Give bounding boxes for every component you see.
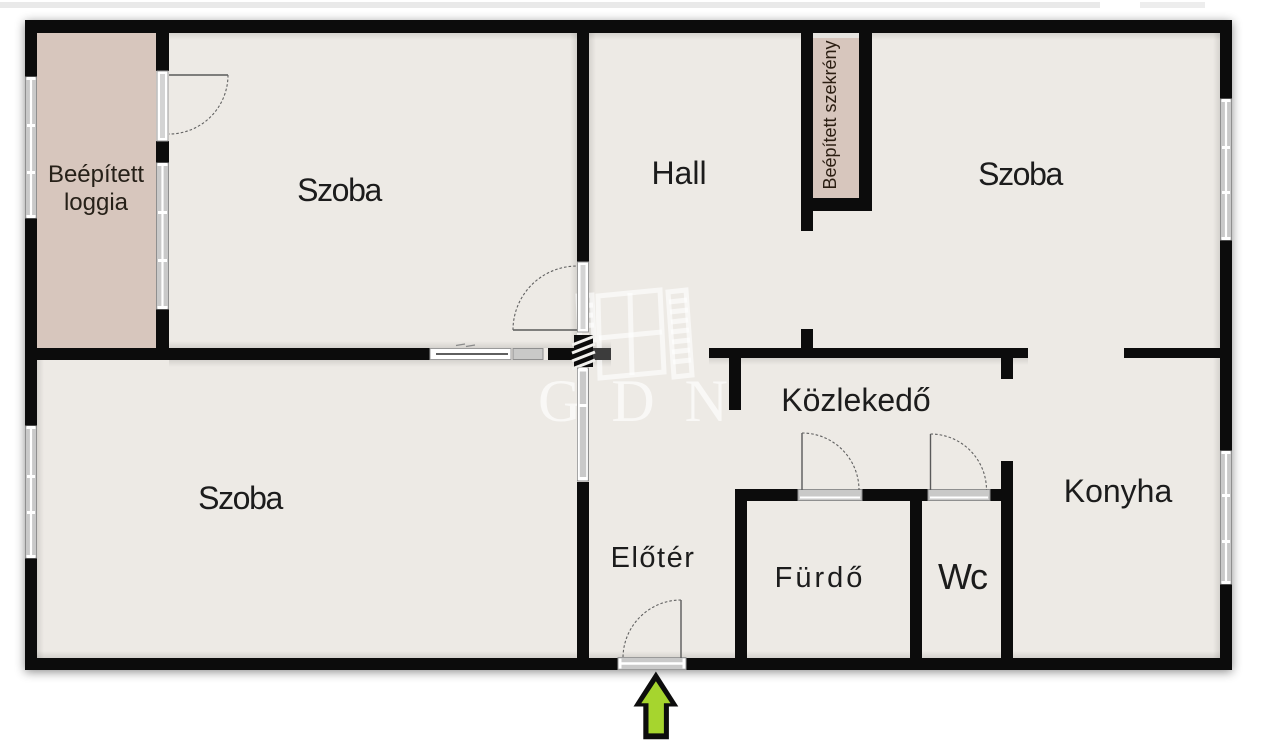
svg-text:Szoba: Szoba — [198, 480, 283, 516]
svg-text:Előtér: Előtér — [611, 542, 696, 574]
svg-text:Szoba: Szoba — [978, 156, 1063, 192]
svg-text:Beépített szekrény: Beépített szekrény — [820, 40, 840, 189]
svg-text:Konyha: Konyha — [1064, 473, 1173, 509]
svg-text:Beépített: Beépített — [48, 161, 144, 188]
svg-text:loggia: loggia — [64, 189, 129, 216]
svg-text:Hall: Hall — [651, 155, 706, 191]
svg-text:Szoba: Szoba — [297, 172, 382, 208]
svg-text:Közlekedő: Közlekedő — [781, 382, 930, 418]
svg-text:GDN: GDN — [538, 368, 758, 434]
svg-text:Fürdő: Fürdő — [775, 562, 866, 594]
svg-text:Wc: Wc — [938, 556, 988, 597]
